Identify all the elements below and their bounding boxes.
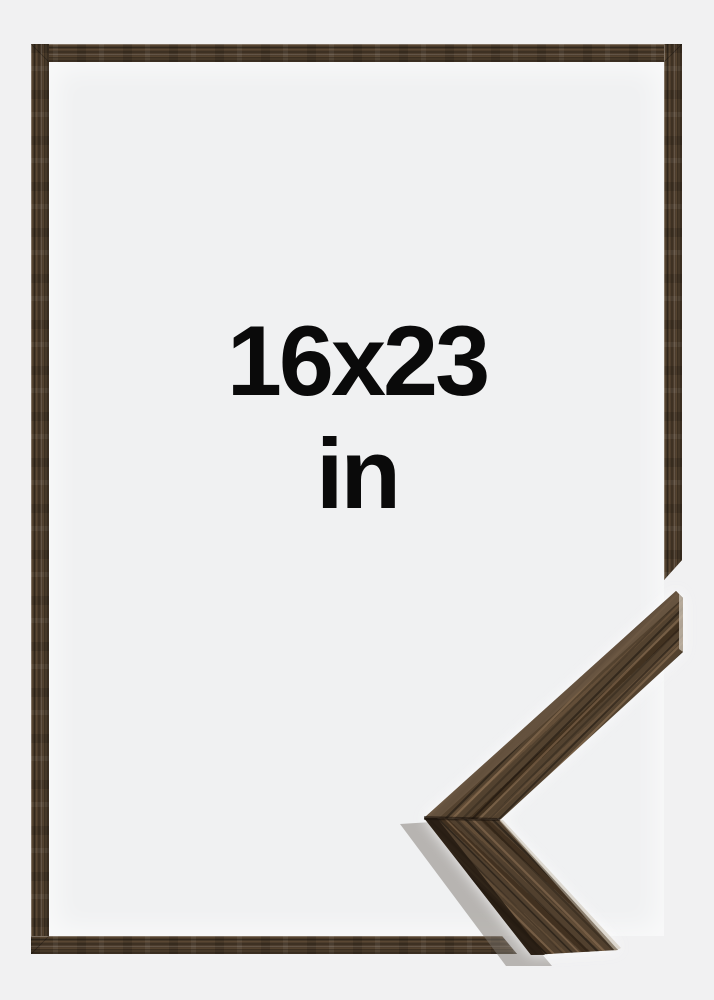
- corner-sample-upper-arm-top-face: [0, 0, 714, 1000]
- product-image: 16x23 in: [0, 0, 714, 1000]
- corner-sample-upper-arm: [0, 0, 714, 1000]
- corner-sample-miter-seam: [0, 0, 714, 1000]
- frame-corner-sample: [0, 0, 714, 1000]
- corner-sample-upper-arm-end-edge: [0, 0, 714, 1000]
- corner-sample-lower-arm-inner-edge: [0, 0, 714, 1000]
- corner-sample-lower-arm-side-face: [0, 0, 714, 1000]
- corner-sample-lower-arm: [0, 0, 714, 1000]
